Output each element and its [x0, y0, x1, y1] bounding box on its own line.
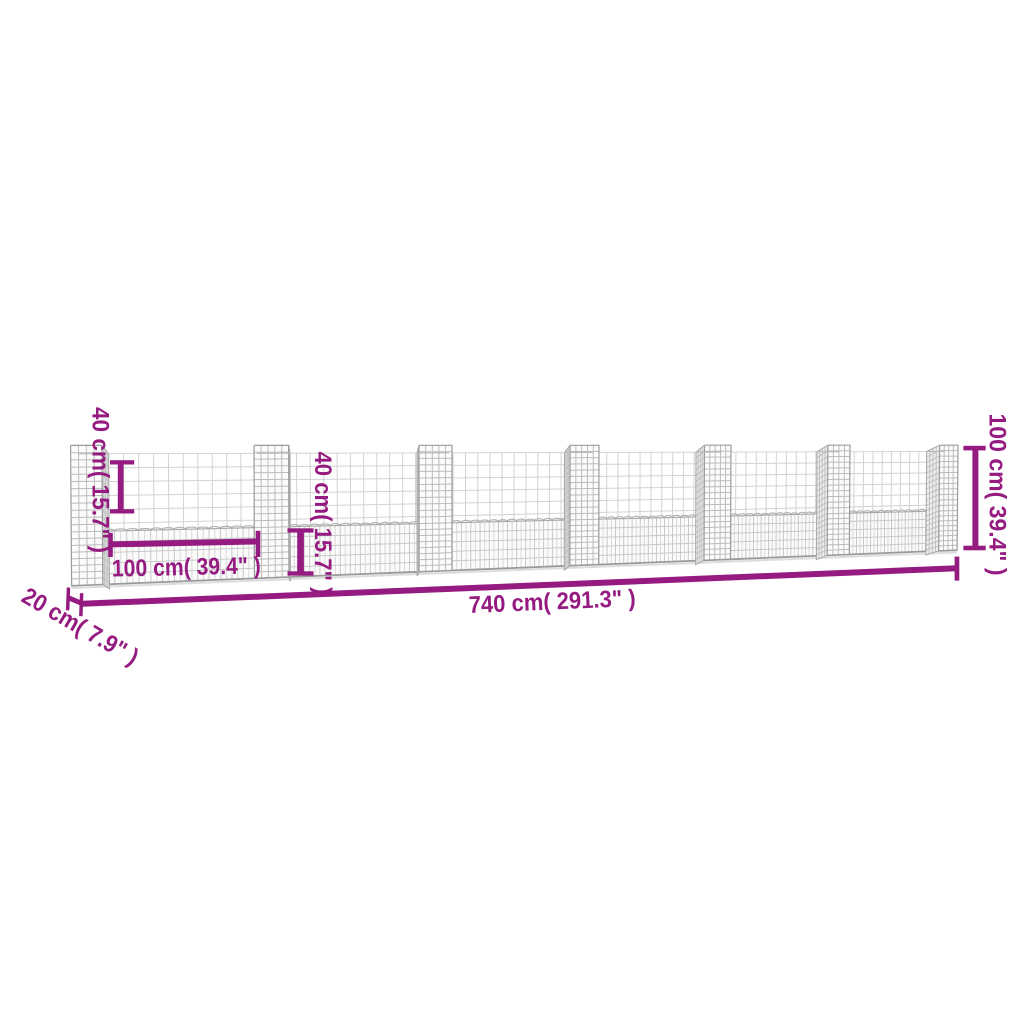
svg-text:100 cm( 39.4" ): 100 cm( 39.4" ) — [984, 414, 1011, 576]
svg-text:100 cm( 39.4" ): 100 cm( 39.4" ) — [112, 552, 262, 582]
svg-text:40 cm( 15.7" ): 40 cm( 15.7" ) — [309, 452, 336, 595]
svg-text:40 cm( 15.7" ): 40 cm( 15.7" ) — [87, 407, 114, 553]
